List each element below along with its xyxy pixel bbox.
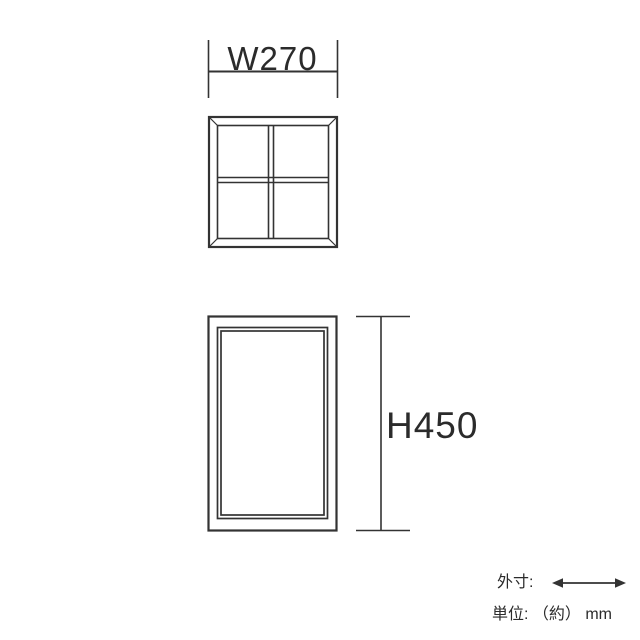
width-dimension-label: W270 (208, 42, 337, 75)
double-arrow-icon (552, 578, 626, 587)
legend-unit-label: 単位: （約） mm (492, 607, 612, 623)
product-dimension-diagram: W270 H450 外寸: 単位: （約） mm (0, 0, 640, 640)
top-view (209, 117, 337, 247)
height-dimension-label: H450 (386, 407, 478, 444)
legend-outer-size-label: 外寸: (497, 575, 533, 591)
front-view (209, 317, 337, 531)
diagram-linework (0, 0, 640, 640)
